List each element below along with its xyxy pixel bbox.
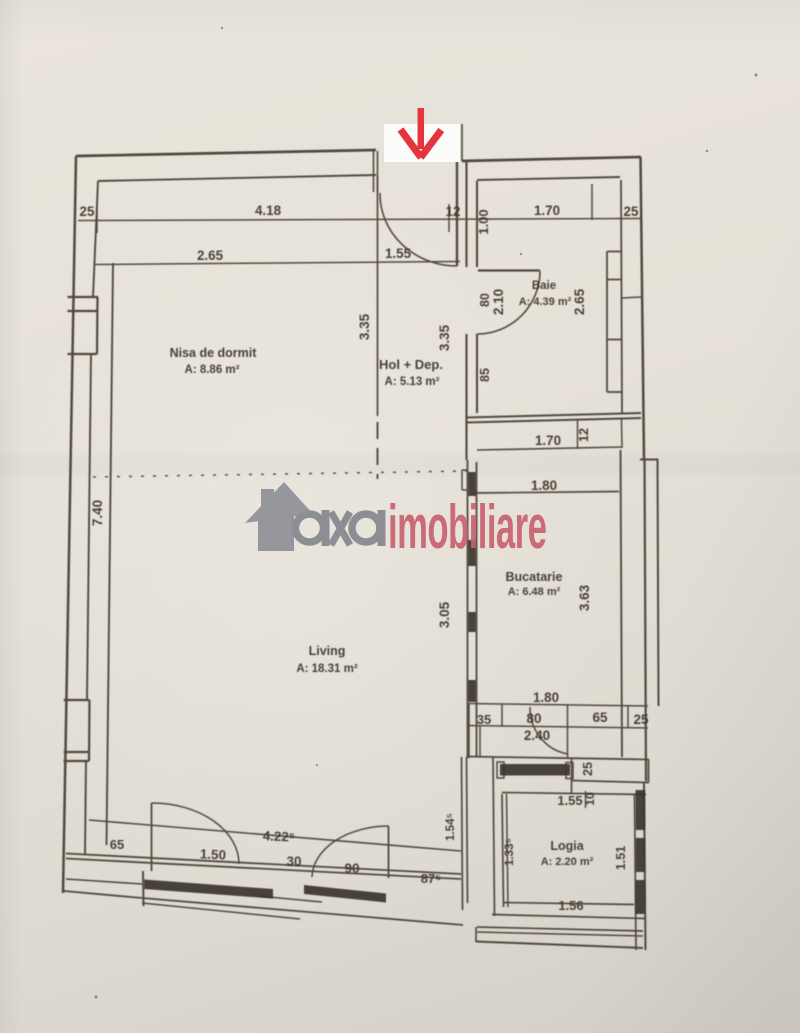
svg-text:Living: Living xyxy=(309,644,346,658)
svg-text:25: 25 xyxy=(624,204,639,219)
svg-text:1.80: 1.80 xyxy=(531,478,557,493)
svg-text:2.10: 2.10 xyxy=(491,289,506,315)
svg-text:2.40: 2.40 xyxy=(524,728,550,743)
svg-text:3.35: 3.35 xyxy=(437,324,452,351)
svg-text:1.80: 1.80 xyxy=(533,690,559,705)
svg-text:1.70: 1.70 xyxy=(535,433,561,448)
svg-text:10: 10 xyxy=(583,792,597,806)
svg-text:A: 6.48 m²: A: 6.48 m² xyxy=(508,586,561,598)
svg-text:1.54⁵: 1.54⁵ xyxy=(445,813,457,841)
svg-text:1.55: 1.55 xyxy=(557,793,582,808)
svg-text:A: 18.31 m²: A: 18.31 m² xyxy=(296,663,358,675)
svg-text:A: 4.39 m²: A: 4.39 m² xyxy=(519,296,572,308)
svg-text:1.55: 1.55 xyxy=(385,246,412,261)
svg-text:Bucatarie: Bucatarie xyxy=(506,570,563,584)
svg-text:A: 5.13 m²: A: 5.13 m² xyxy=(385,376,440,388)
svg-text:4.18: 4.18 xyxy=(255,203,282,218)
svg-text:3.05: 3.05 xyxy=(437,601,452,628)
svg-text:3.63: 3.63 xyxy=(577,584,592,611)
svg-text:80: 80 xyxy=(478,293,492,307)
svg-text:imobiliare: imobiliare xyxy=(388,492,546,561)
svg-text:Nisa de dormit: Nisa de dormit xyxy=(170,346,258,360)
svg-text:65: 65 xyxy=(592,710,608,725)
svg-text:30: 30 xyxy=(286,854,301,869)
svg-text:25: 25 xyxy=(633,712,649,727)
svg-text:80: 80 xyxy=(526,711,541,726)
svg-text:4.22⁵: 4.22⁵ xyxy=(262,828,295,844)
svg-text:1.51: 1.51 xyxy=(614,846,628,870)
svg-text:85: 85 xyxy=(478,368,492,382)
svg-text:65: 65 xyxy=(110,837,124,852)
svg-text:1.70: 1.70 xyxy=(534,203,560,218)
svg-text:90: 90 xyxy=(344,861,359,876)
svg-text:2.65: 2.65 xyxy=(197,248,224,263)
svg-text:1.56: 1.56 xyxy=(558,898,583,913)
svg-text:Logia: Logia xyxy=(550,839,584,853)
svg-text:1.50: 1.50 xyxy=(200,846,227,862)
svg-text:7.40: 7.40 xyxy=(90,500,105,526)
svg-text:12: 12 xyxy=(577,428,591,442)
svg-text:25: 25 xyxy=(581,762,595,776)
svg-text:Hol + Dep.: Hol + Dep. xyxy=(379,357,443,372)
svg-text:25: 25 xyxy=(80,204,95,219)
svg-text:87⁵: 87⁵ xyxy=(421,871,442,886)
svg-text:3.35: 3.35 xyxy=(357,313,372,340)
svg-text:12: 12 xyxy=(446,204,461,219)
svg-text:Baie: Baie xyxy=(532,280,556,292)
svg-text:A: 2.20 m²: A: 2.20 m² xyxy=(541,856,594,868)
svg-text:1.33⁵: 1.33⁵ xyxy=(504,838,516,866)
svg-text:35: 35 xyxy=(477,712,491,727)
svg-text:A: 8.86 m²: A: 8.86 m² xyxy=(185,364,240,376)
svg-text:1.00: 1.00 xyxy=(476,209,491,234)
svg-text:2.65: 2.65 xyxy=(572,288,587,315)
